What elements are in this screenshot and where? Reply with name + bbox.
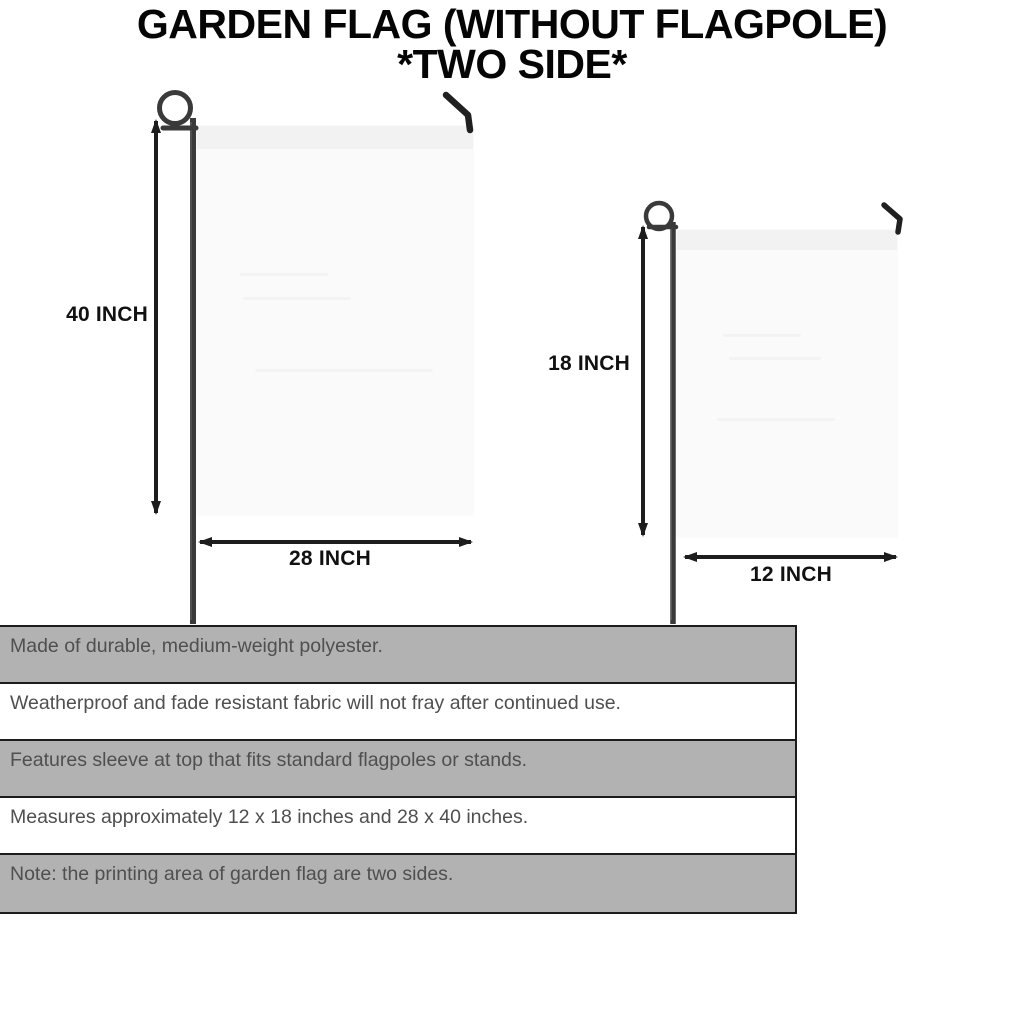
spec-table: Made of durable, medium-weight polyester… (0, 625, 797, 914)
flagpole-loop-icon-small (646, 203, 672, 229)
dimension-label-height-small: 18 INCH (518, 352, 630, 376)
dimension-label-height-large: 40 INCH (36, 303, 148, 327)
page-title: GARDEN FLAG (WITHOUT FLAGPOLE) *TWO SIDE… (0, 4, 1024, 84)
dimension-label-width-large: 28 INCH (255, 547, 405, 571)
garden-flag-infographic: GARDEN FLAG (WITHOUT FLAGPOLE) *TWO SIDE… (0, 0, 1024, 1024)
flag-small-crease (729, 357, 821, 360)
flag-large-crease (255, 369, 433, 372)
title-line-2: *TWO SIDE* (0, 44, 1024, 84)
spec-row-sleeve: Features sleeve at top that fits standar… (0, 741, 795, 798)
flag-large-sleeve (197, 126, 473, 149)
flagpole-loop-icon-large (160, 93, 191, 124)
spec-row-material: Made of durable, medium-weight polyester… (0, 627, 795, 684)
dimension-label-width-small: 12 INCH (716, 563, 866, 587)
flagpole-hook-icon-large (446, 95, 470, 130)
flag-large-crease (240, 273, 328, 276)
spec-row-note: Note: the printing area of garden flag a… (0, 855, 795, 912)
flag-large (197, 126, 473, 515)
flag-small-sleeve (677, 230, 897, 250)
title-line-1: GARDEN FLAG (WITHOUT FLAGPOLE) (0, 4, 1024, 44)
flagpole-hook-icon-small (884, 205, 900, 232)
flag-small-crease (717, 418, 835, 421)
flag-large-crease (243, 297, 351, 300)
flag-small (677, 230, 897, 537)
spec-row-measures: Measures approximately 12 x 18 inches an… (0, 798, 795, 855)
flag-small-crease (723, 334, 801, 337)
spec-row-weatherproof: Weatherproof and fade resistant fabric w… (0, 684, 795, 741)
